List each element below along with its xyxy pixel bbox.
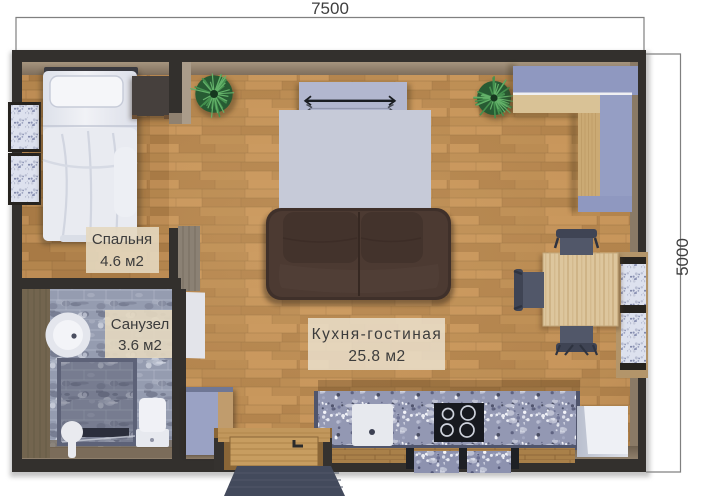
svg-text:Санузел: Санузел xyxy=(111,316,169,333)
svg-text:7500: 7500 xyxy=(311,0,349,18)
svg-text:Кухня-гостиная: Кухня-гостиная xyxy=(312,326,443,343)
svg-text:Спальня: Спальня xyxy=(92,231,152,248)
svg-text:3.6 м2: 3.6 м2 xyxy=(118,337,162,354)
svg-text:5000: 5000 xyxy=(673,238,692,276)
svg-text:25.8 м2: 25.8 м2 xyxy=(348,348,405,365)
svg-text:4.6 м2: 4.6 м2 xyxy=(100,253,144,270)
